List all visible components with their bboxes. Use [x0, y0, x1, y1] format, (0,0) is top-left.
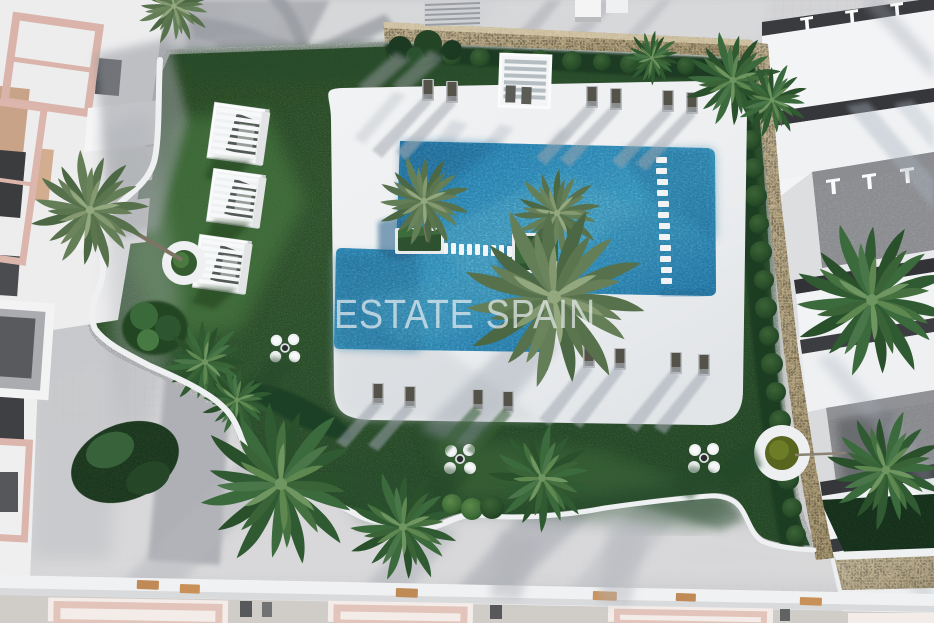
svg-text:ESTATE SPAIN: ESTATE SPAIN: [334, 291, 596, 337]
